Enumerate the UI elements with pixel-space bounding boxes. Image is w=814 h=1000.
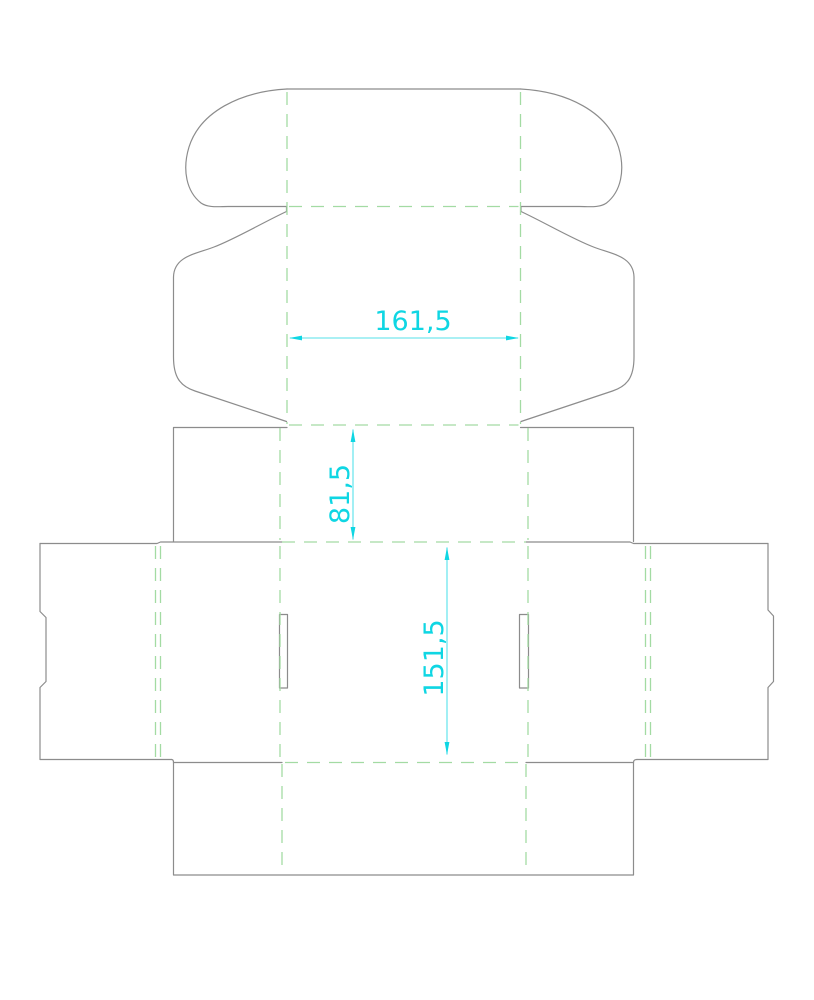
arrow-length-bottom [445, 742, 450, 755]
arrow-length-top [445, 547, 450, 560]
left-lock-slot [280, 615, 288, 689]
fold-lines [156, 92, 651, 873]
right-lock-slot [520, 615, 529, 689]
left-lock-flap-outline [40, 544, 172, 760]
arrow-depth-top [351, 429, 356, 442]
neck-right-panel-edges [521, 428, 634, 542]
dimension-length-label: 151,5 [419, 619, 450, 696]
dimension-depth-label: 81,5 [325, 464, 356, 524]
body-row-top-left-edge [40, 542, 282, 544]
dimension-labels: 161,5 81,5 151,5 [325, 306, 452, 697]
dimension-width-label: 161,5 [374, 306, 451, 337]
arrow-width-right [506, 336, 519, 341]
bottom-right-jog [634, 760, 638, 763]
body-row-top-right-edge [526, 542, 768, 544]
arrow-width-left [289, 336, 302, 341]
dieline-canvas: 161,5 81,5 151,5 [0, 0, 814, 1000]
tuck-flap-left-ear-and-left-wing [174, 89, 288, 422]
dimension-arrowheads [289, 336, 519, 755]
arrow-depth-bottom [351, 527, 356, 540]
tuck-flap-right-ear-and-right-wing [521, 89, 635, 422]
right-lock-flap-outline [637, 544, 774, 760]
neck-left-panel-edges [174, 428, 288, 542]
dimension-lines [290, 338, 518, 755]
dieline-page: 161,5 81,5 151,5 [0, 0, 814, 1000]
bottom-panel-outline [174, 763, 634, 876]
